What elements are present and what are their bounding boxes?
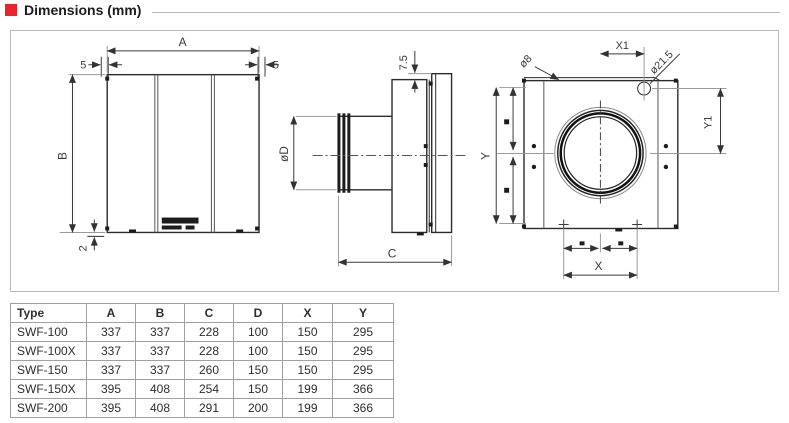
cell-c: 228 [185, 342, 234, 361]
column-header-y: Y [333, 304, 394, 323]
column-header-c: C [185, 304, 234, 323]
dim-label-two: 2 [77, 245, 89, 251]
cell-type: SWF-100X [11, 342, 87, 361]
product-label-sticker [162, 218, 199, 230]
dimension-drawing: A 5 5 B [11, 31, 778, 291]
back-view-drawing: X1 ø8 ø21.5 Y1 Y [478, 40, 726, 279]
cell-y: 366 [333, 399, 394, 418]
cell-x: 150 [283, 361, 333, 380]
table-header-row: Type A B C D X Y [11, 304, 394, 323]
dim-label-x1: X1 [616, 40, 629, 52]
cell-d: 200 [234, 399, 283, 418]
header-rule [152, 12, 780, 13]
column-header-type: Type [11, 304, 87, 323]
dim-label-y1: Y1 [703, 116, 715, 129]
page: Dimensions (mm) [0, 0, 789, 423]
cell-b: 337 [136, 361, 185, 380]
dim-label-five-left: 5 [80, 60, 86, 72]
dim-label-seven-five: 7.5 [398, 55, 410, 70]
cell-x: 150 [283, 323, 333, 342]
table-row: SWF-100 337 337 228 100 150 295 [11, 323, 394, 342]
cell-type: SWF-150X [11, 380, 87, 399]
table-row: SWF-150 337 337 260 150 150 295 [11, 361, 394, 380]
cell-d: 100 [234, 323, 283, 342]
column-header-a: A [87, 304, 136, 323]
cell-b: 337 [136, 323, 185, 342]
drawing-panel: A 5 5 B [10, 30, 779, 292]
cell-a: 337 [87, 361, 136, 380]
table-row: SWF-150X 395 408 254 150 199 366 [11, 380, 394, 399]
dim-label-five-right: 5 [273, 60, 279, 72]
cell-x: 199 [283, 380, 333, 399]
cell-y: 366 [333, 380, 394, 399]
cell-y: 295 [333, 361, 394, 380]
dimensions-table: Type A B C D X Y SWF-100 337 337 228 100… [10, 303, 394, 418]
dim-label-a: A [179, 35, 187, 49]
cell-a: 337 [87, 323, 136, 342]
cell-c: 228 [185, 323, 234, 342]
cell-c: 291 [185, 399, 234, 418]
column-header-d: D [234, 304, 283, 323]
dim-label-diameter-d: øD [277, 146, 291, 162]
cell-b: 408 [136, 380, 185, 399]
cell-type: SWF-150 [11, 361, 87, 380]
dim-label-y: Y [478, 152, 492, 160]
cell-d: 100 [234, 342, 283, 361]
cell-d: 150 [234, 361, 283, 380]
cell-type: SWF-200 [11, 399, 87, 418]
duct-opening-circle [555, 100, 646, 206]
dim-label-b: B [56, 152, 70, 160]
cell-b: 408 [136, 399, 185, 418]
cell-x: 150 [283, 342, 333, 361]
dim-label-hole-dia8: ø8 [517, 53, 534, 70]
cell-a: 395 [87, 380, 136, 399]
front-view-drawing: A 5 5 B [56, 35, 279, 251]
cell-a: 395 [87, 399, 136, 418]
section-title: Dimensions (mm) [24, 0, 141, 20]
cell-y: 295 [333, 342, 394, 361]
cell-d: 150 [234, 380, 283, 399]
cell-c: 260 [185, 361, 234, 380]
table-row: SWF-100X 337 337 228 100 150 295 [11, 342, 394, 361]
cell-b: 337 [136, 342, 185, 361]
column-header-x: X [283, 304, 333, 323]
table-row: SWF-200 395 408 291 200 199 366 [11, 399, 394, 418]
dim-label-x: X [594, 259, 602, 273]
cell-type: SWF-100 [11, 323, 87, 342]
side-view-drawing: øD 7.5 C [277, 51, 468, 266]
cell-y: 295 [333, 323, 394, 342]
dim-label-c: C [388, 246, 397, 260]
section-bullet-icon [5, 4, 17, 16]
cell-c: 254 [185, 380, 234, 399]
cell-a: 337 [87, 342, 136, 361]
cell-x: 199 [283, 399, 333, 418]
column-header-b: B [136, 304, 185, 323]
